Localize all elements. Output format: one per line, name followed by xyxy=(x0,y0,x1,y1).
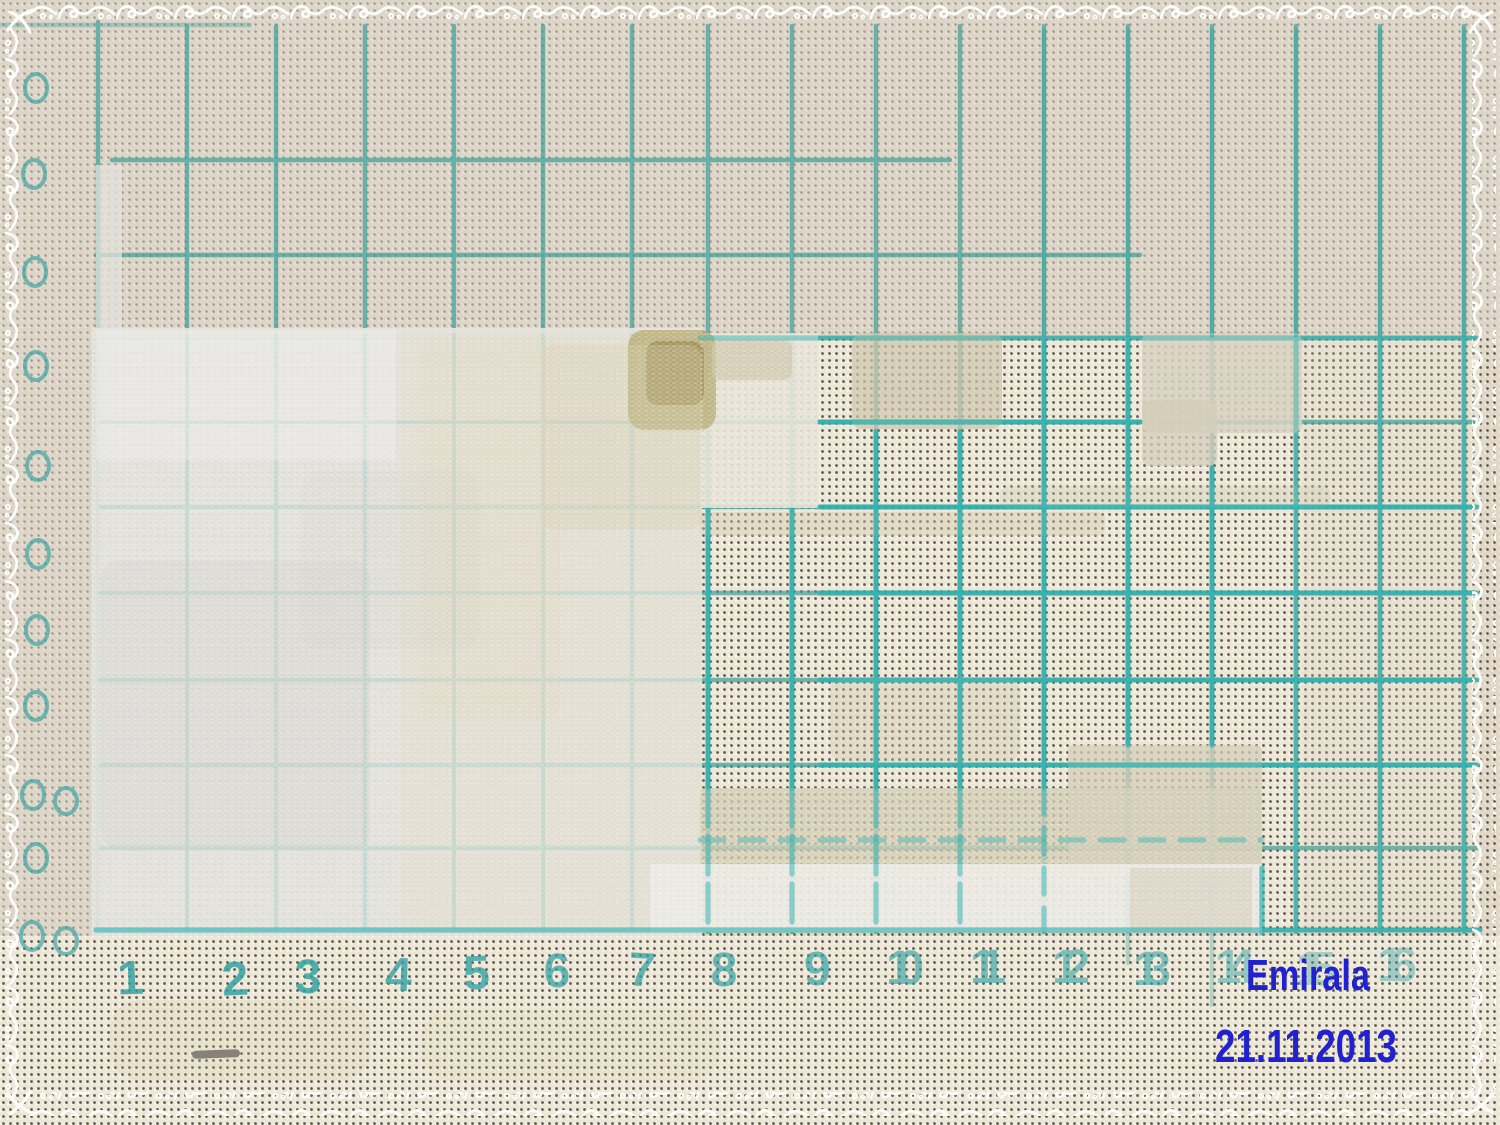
svg-text:21.11.2013: 21.11.2013 xyxy=(1215,1020,1397,1072)
svg-text:3: 3 xyxy=(295,951,322,1004)
svg-text:1: 1 xyxy=(116,952,145,1006)
svg-text:12: 12 xyxy=(1052,941,1090,994)
svg-text:16: 16 xyxy=(1377,939,1417,992)
svg-text:7: 7 xyxy=(627,943,656,997)
svg-text:11: 11 xyxy=(970,941,1006,994)
svg-text:4: 4 xyxy=(384,949,413,1003)
svg-text:8: 8 xyxy=(711,944,738,997)
svg-text:9: 9 xyxy=(803,943,832,997)
svg-text:6: 6 xyxy=(544,945,571,998)
svg-text:13: 13 xyxy=(1133,943,1171,996)
svg-text:10: 10 xyxy=(886,942,924,995)
svg-text:5: 5 xyxy=(462,947,491,1001)
svg-text:Emirala: Emirala xyxy=(1246,951,1370,1000)
svg-text:2: 2 xyxy=(220,952,249,1006)
